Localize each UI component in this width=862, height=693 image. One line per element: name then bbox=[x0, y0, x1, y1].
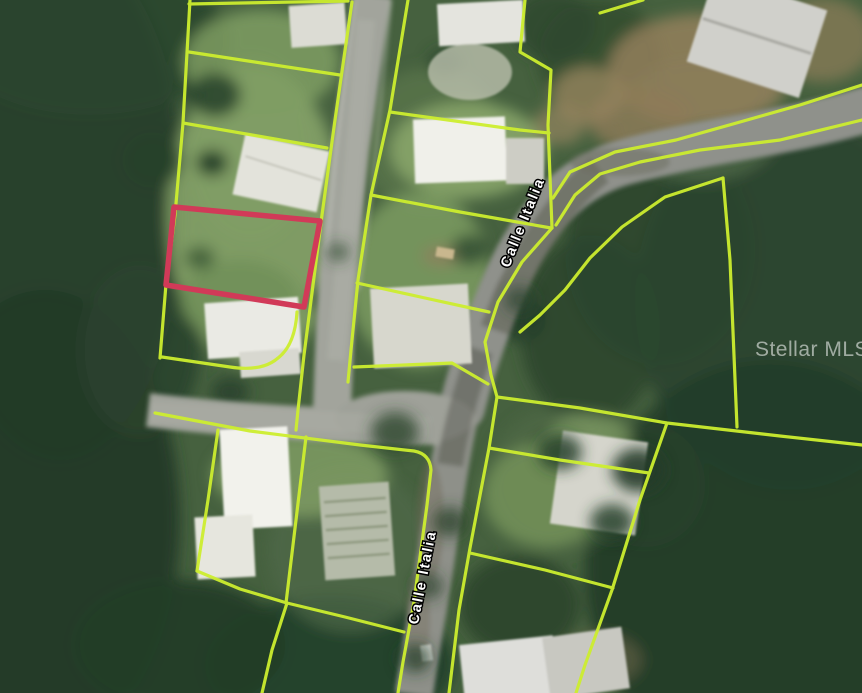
satellite-map[interactable]: Calle Italia Calle Italia Stellar MLS bbox=[0, 0, 862, 693]
stellar-mls-watermark: Stellar MLS bbox=[755, 338, 862, 361]
mls-map-view: Calle Italia Calle Italia Stellar MLS bbox=[0, 0, 862, 693]
